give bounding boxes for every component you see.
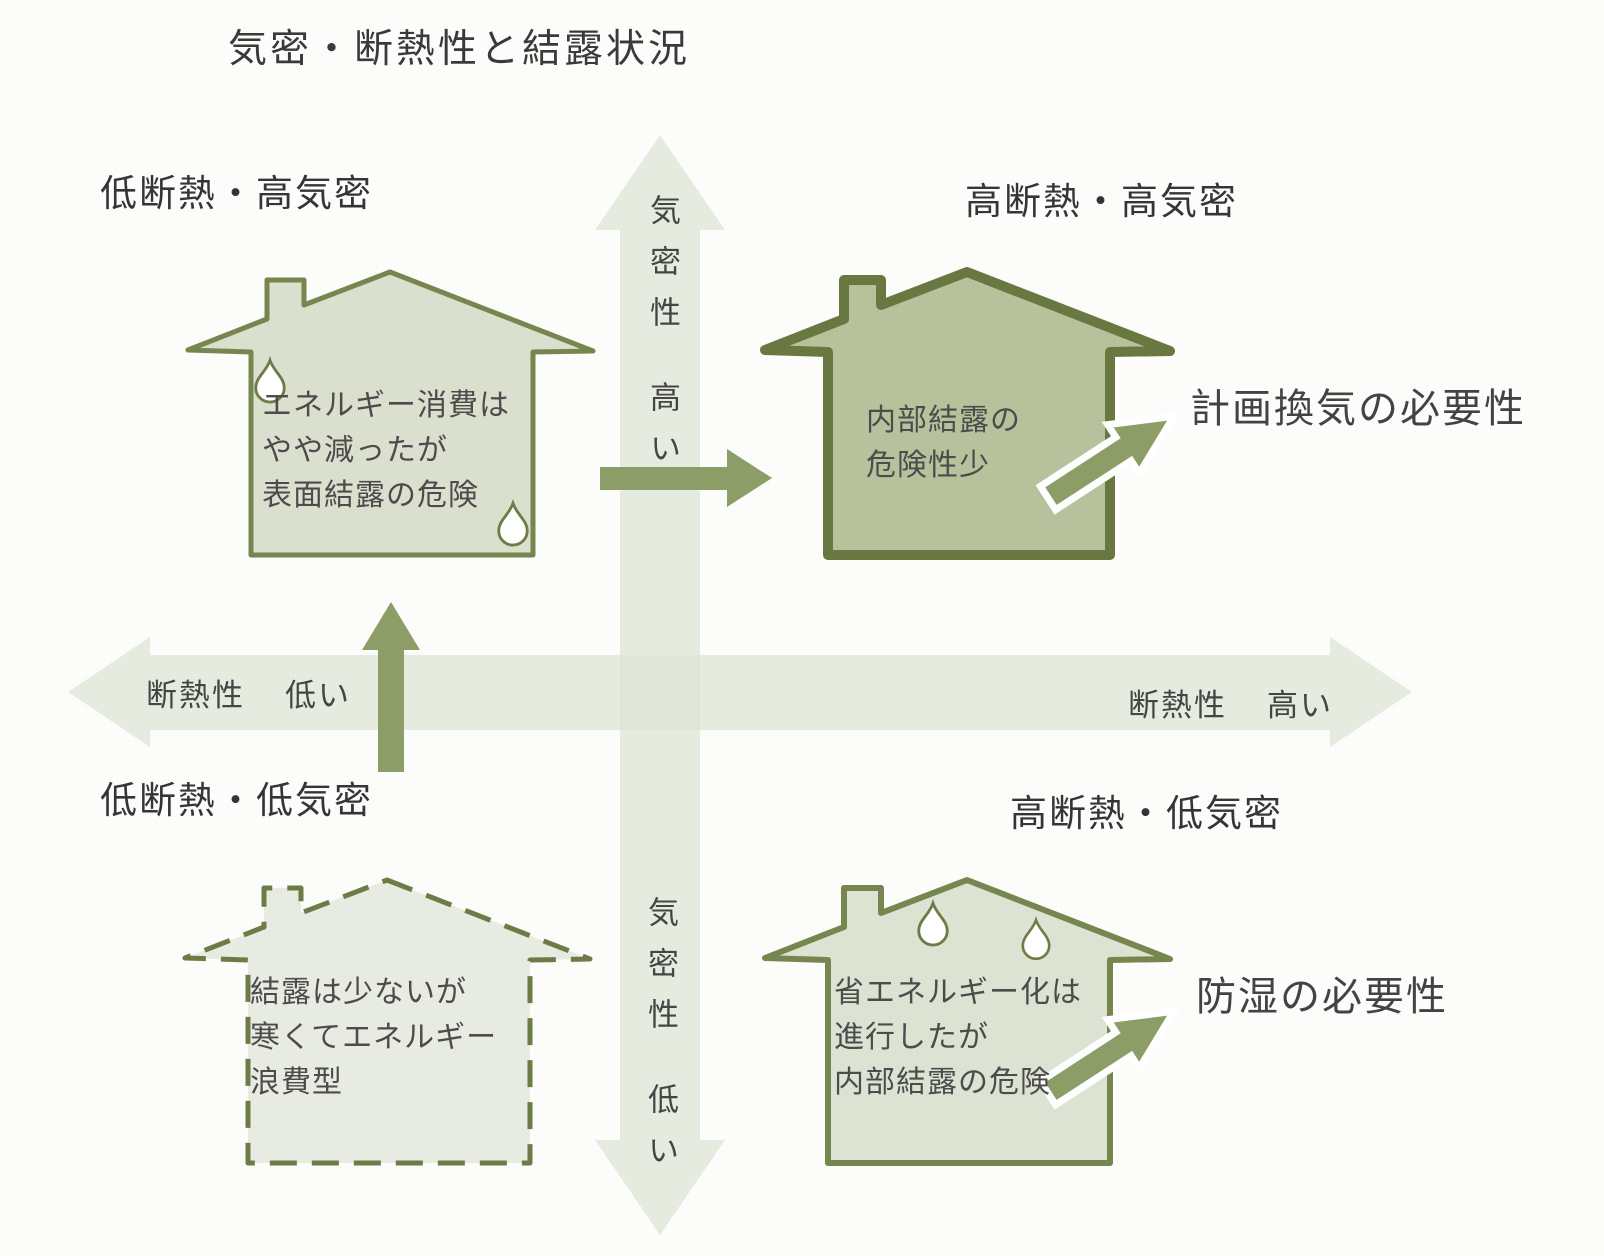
axis-value: 高い [1267,688,1333,723]
diagram-title: 気密・断熱性と結露状況 [228,18,690,74]
house-text-line: 結露は少ないが [250,970,497,1015]
axis-value: 低い [285,678,351,713]
quadrant-label-bottom-left: 低断熱・低気密 [100,770,373,824]
axis-name: 気密性 [643,896,678,1049]
axis-label-insulation-low: 断熱性低い [146,670,351,715]
quadrant-label-top-left: 低断熱・高気密 [100,163,373,217]
house-text-line: 内部結露の危険 [834,1060,1082,1105]
house-text-bottom-right: 省エネルギー化は 進行したが 内部結露の危険 [834,970,1082,1105]
house-text-line: 浪費型 [250,1060,497,1105]
axis-name: 断熱性 [1128,688,1227,723]
house-text-line: 内部結露の [866,398,1021,443]
quadrant-label-top-right: 高断熱・高気密 [965,171,1238,225]
house-text-bottom-left: 結露は少ないが 寒くてエネルギー 浪費型 [250,970,497,1105]
house-text-line: 危険性少 [866,443,1021,488]
axis-name: 気密性 [645,194,680,347]
callout-planned-ventilation: 計画換気の必要性 [1190,376,1526,434]
axis-label-insulation-high: 断熱性高い [1128,680,1333,725]
house-text-line: 寒くてエネルギー [250,1015,497,1060]
house-text-top-left: エネルギー消費は やや減ったが 表面結露の危険 [262,383,510,518]
diagram-canvas: 気密・断熱性と結露状況 低断熱・高気密 高断熱・高気密 低断熱・低気密 高断熱・… [0,0,1604,1256]
house-text-line: やや減ったが [262,428,510,473]
house-text-line: 進行したが [834,1015,1082,1060]
house-text-line: 表面結露の危険 [262,473,510,518]
axis-label-airtightness-high: 気密性高い [640,194,685,483]
quadrant-label-bottom-right: 高断熱・低気密 [1010,783,1283,837]
house-text-line: 省エネルギー化は [834,970,1082,1015]
axis-value: 低い [643,1083,678,1185]
house-text-top-right: 内部結露の 危険性少 [866,398,1021,488]
axis-value: 高い [645,381,680,483]
axis-name: 断熱性 [146,678,245,713]
axis-label-airtightness-low: 気密性低い [638,896,683,1185]
callout-moisture-proofing: 防湿の必要性 [1196,964,1448,1022]
house-text-line: エネルギー消費は [262,383,510,428]
